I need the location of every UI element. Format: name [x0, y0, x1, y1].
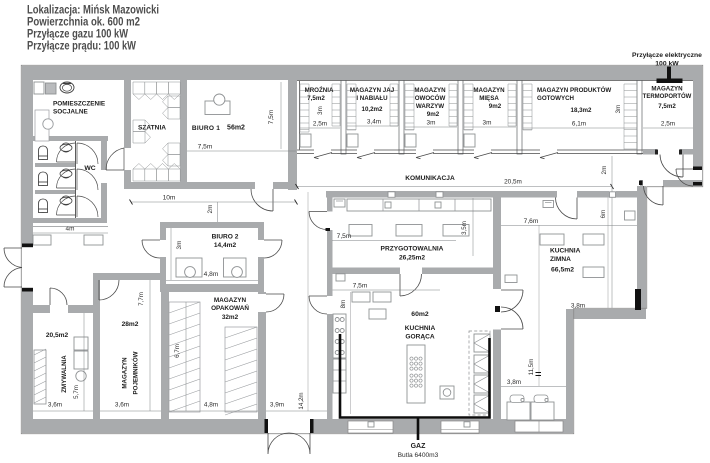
svg-text:9m2: 9m2	[489, 103, 502, 110]
svg-text:OPAKOWAŃ: OPAKOWAŃ	[211, 303, 249, 312]
svg-text:7,5m: 7,5m	[198, 144, 213, 151]
svg-text:4,8m: 4,8m	[204, 402, 218, 409]
svg-text:GORĄCA: GORĄCA	[405, 334, 435, 341]
svg-text:7,6m: 7,6m	[524, 218, 539, 225]
svg-text:18,3m2: 18,3m2	[571, 107, 593, 114]
svg-text:Przyłącze elektryczne: Przyłącze elektryczne	[632, 52, 702, 59]
svg-text:10,2m2: 10,2m2	[362, 106, 384, 113]
svg-text:8m: 8m	[340, 300, 347, 309]
svg-text:9m2: 9m2	[427, 111, 440, 118]
svg-text:4,8m: 4,8m	[204, 271, 219, 278]
svg-text:Przyłącze prądu: 100 kW: Przyłącze prądu: 100 kW	[27, 39, 136, 53]
svg-text:3,5m: 3,5m	[461, 221, 468, 235]
svg-text:3,6m: 3,6m	[48, 402, 62, 409]
svg-text:BIURO 1: BIURO 1	[192, 125, 220, 132]
svg-text:2m: 2m	[207, 205, 214, 214]
svg-text:14,2m: 14,2m	[298, 392, 305, 409]
svg-text:KOMUNIKACJA: KOMUNIKACJA	[405, 175, 455, 182]
svg-text:POJEMNIKÓW: POJEMNIKÓW	[132, 351, 140, 394]
svg-text:I NABIAŁU: I NABIAŁU	[356, 95, 388, 102]
svg-text:20,5m2: 20,5m2	[46, 332, 69, 339]
svg-text:WARZYW: WARZYW	[416, 103, 444, 110]
svg-text:3,6m: 3,6m	[115, 402, 129, 409]
svg-text:10m: 10m	[163, 195, 176, 202]
svg-text:7,5m2: 7,5m2	[307, 95, 325, 102]
svg-text:2,5m: 2,5m	[661, 121, 675, 128]
svg-text:7,5m: 7,5m	[353, 283, 368, 290]
svg-text:7,5m: 7,5m	[337, 233, 352, 240]
svg-text:SZATNIA: SZATNIA	[138, 125, 166, 132]
svg-text:MIĘSA: MIĘSA	[479, 95, 499, 102]
svg-text:MAGAZYN PRODUKTÓW: MAGAZYN PRODUKTÓW	[537, 86, 611, 94]
svg-text:60m2: 60m2	[411, 311, 429, 318]
svg-text:MAGAZYN: MAGAZYN	[122, 357, 129, 389]
svg-text:6,7m: 6,7m	[174, 344, 181, 358]
svg-text:KUCHNIA: KUCHNIA	[405, 325, 436, 332]
svg-text:26,25m2: 26,25m2	[399, 255, 425, 262]
svg-text:MAGAZYN: MAGAZYN	[414, 87, 446, 94]
svg-text:11,5m: 11,5m	[528, 359, 535, 376]
svg-text:56m2: 56m2	[227, 125, 245, 132]
svg-text:28m2: 28m2	[122, 321, 139, 328]
svg-text:6m: 6m	[600, 210, 607, 219]
svg-text:32m2: 32m2	[222, 314, 239, 321]
svg-text:3m: 3m	[176, 241, 183, 250]
svg-text:7,7m: 7,7m	[138, 292, 145, 306]
svg-text:GOTOWYCH: GOTOWYCH	[537, 95, 575, 102]
svg-text:PRZYGOTOWALNIA: PRZYGOTOWALNIA	[381, 246, 444, 253]
svg-text:GAZ: GAZ	[411, 443, 427, 450]
svg-text:66,5m2: 66,5m2	[551, 267, 574, 274]
svg-text:ZIMNA: ZIMNA	[550, 256, 571, 263]
svg-text:3,4m: 3,4m	[367, 119, 381, 126]
svg-text:3,8m: 3,8m	[507, 379, 521, 386]
svg-text:3m: 3m	[427, 120, 436, 127]
svg-text:Butla 6400m3: Butla 6400m3	[398, 452, 439, 459]
svg-text:7,5m2: 7,5m2	[658, 103, 676, 110]
svg-text:MAGAZYN: MAGAZYN	[214, 297, 247, 304]
svg-text:MAGAZYN: MAGAZYN	[473, 87, 505, 94]
svg-text:KUCHNIA: KUCHNIA	[550, 248, 581, 255]
svg-text:5,7m: 5,7m	[73, 385, 80, 399]
svg-text:100 kW: 100 kW	[655, 61, 679, 68]
svg-text:6,1m: 6,1m	[572, 121, 586, 128]
svg-text:BIURO 2: BIURO 2	[212, 234, 239, 241]
svg-text:MAGAZYN JAJ: MAGAZYN JAJ	[350, 87, 395, 94]
svg-text:3m: 3m	[317, 106, 324, 115]
svg-text:14,4m2: 14,4m2	[214, 242, 237, 249]
svg-text:ZMYWALNIA: ZMYWALNIA	[61, 355, 68, 393]
svg-text:20,5m: 20,5m	[504, 179, 522, 186]
svg-text:3m: 3m	[615, 105, 622, 114]
svg-text:SOCJALNE: SOCJALNE	[53, 109, 89, 116]
svg-text:TERMOPORTÓW: TERMOPORTÓW	[643, 92, 692, 100]
svg-text:3m: 3m	[483, 120, 492, 127]
svg-text:7,5m: 7,5m	[268, 109, 275, 124]
svg-text:3,8m: 3,8m	[571, 303, 585, 310]
svg-text:2m: 2m	[601, 166, 608, 175]
svg-text:MROŹNIA: MROŹNIA	[305, 86, 334, 94]
svg-text:2,5m: 2,5m	[313, 121, 327, 128]
svg-text:OWOCÓW: OWOCÓW	[415, 94, 446, 102]
svg-text:3,9m: 3,9m	[270, 402, 284, 409]
svg-text:MAGAZYN: MAGAZYN	[651, 86, 683, 93]
svg-text:POMIESZCZENIE: POMIESZCZENIE	[53, 101, 106, 108]
